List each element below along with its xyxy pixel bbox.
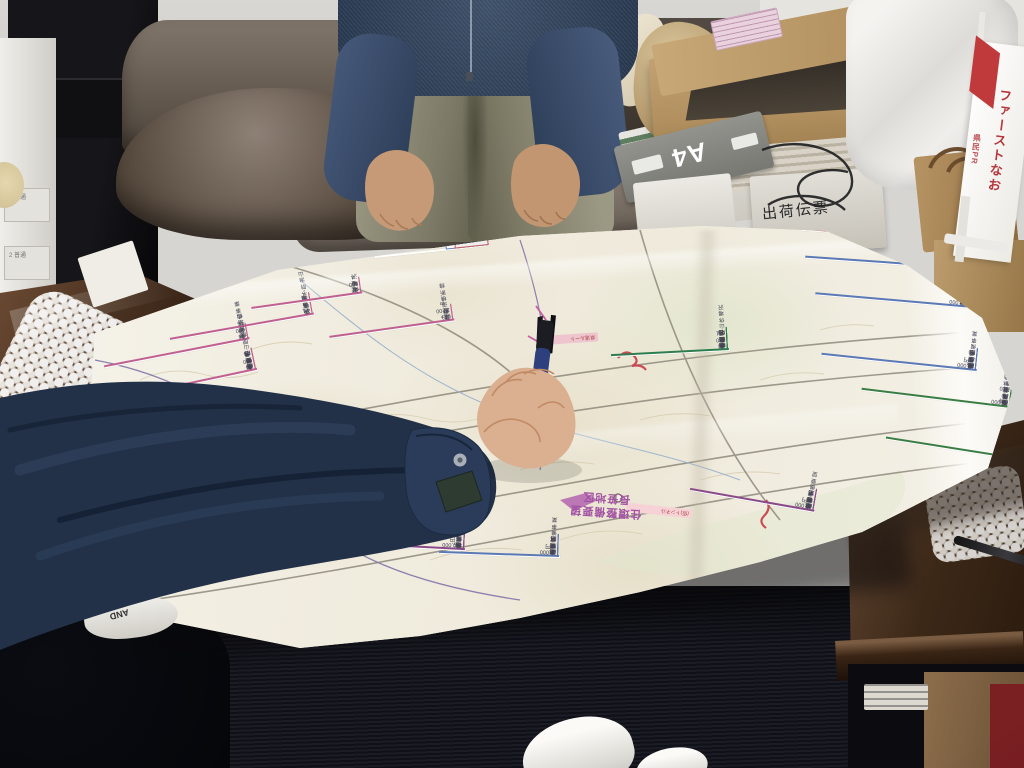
office-map-photo: 1 普通 2 普通 A4 出荷伝票 (0, 0, 1024, 768)
foreground-arm (0, 0, 1024, 768)
